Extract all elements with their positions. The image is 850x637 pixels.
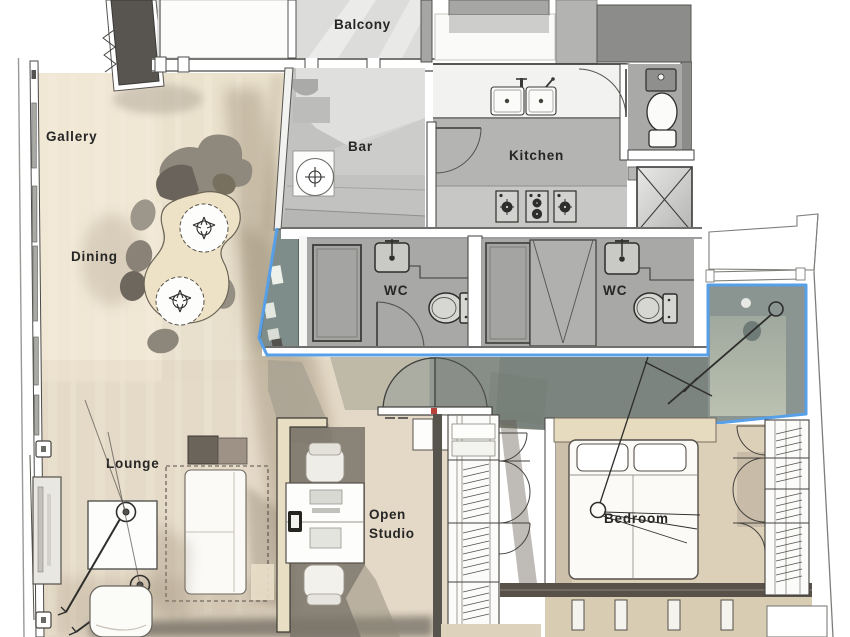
svg-text:Studio: Studio (369, 526, 415, 541)
svg-text:Gallery: Gallery (46, 129, 97, 144)
svg-text:WC: WC (384, 283, 409, 298)
svg-text:Open: Open (369, 507, 406, 522)
svg-text:Balcony: Balcony (334, 17, 391, 32)
svg-text:Dining: Dining (71, 249, 118, 264)
svg-text:Kitchen: Kitchen (509, 148, 564, 163)
svg-text:Bedroom: Bedroom (604, 511, 669, 526)
svg-text:WC: WC (603, 283, 628, 298)
svg-text:Lounge: Lounge (106, 456, 160, 471)
svg-text:Bar: Bar (348, 139, 373, 154)
